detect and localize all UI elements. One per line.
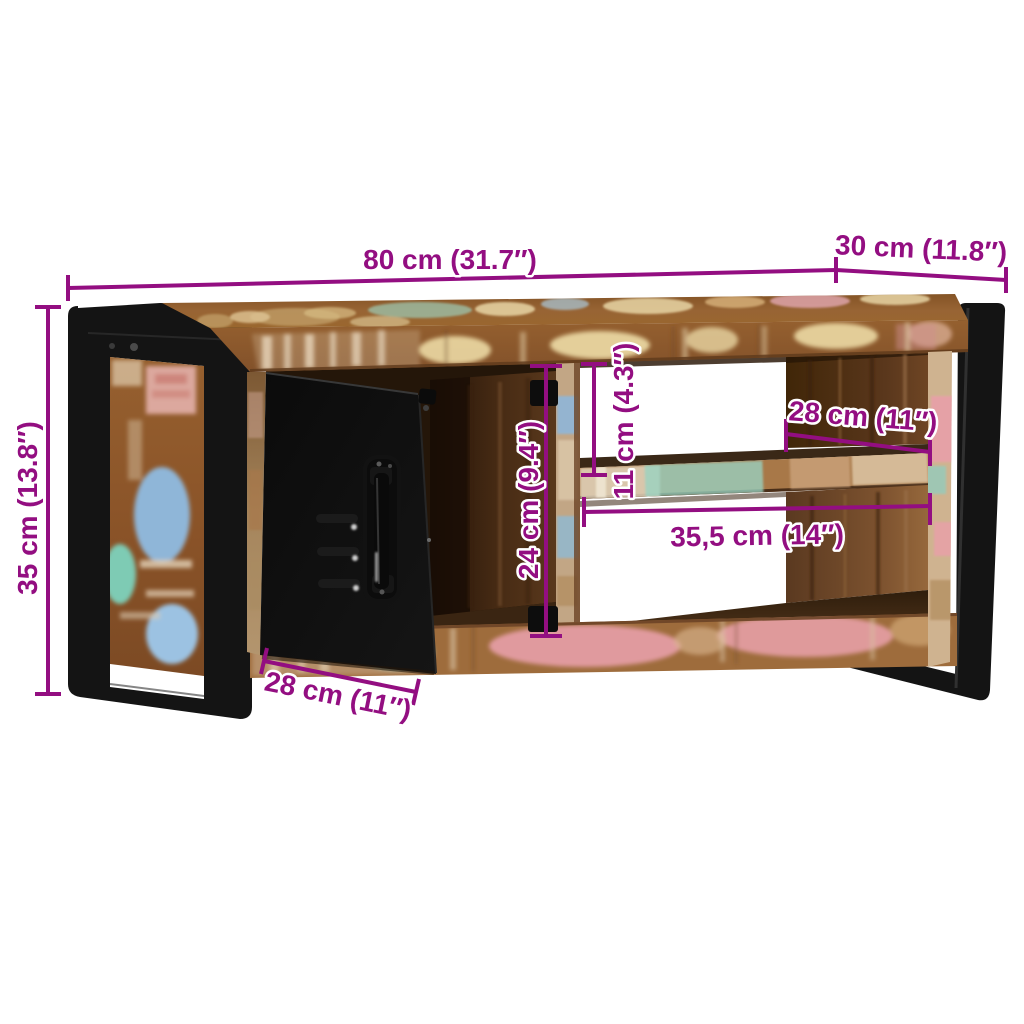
svg-text:24 cm (9.4″): 24 cm (9.4″) bbox=[513, 421, 544, 579]
svg-text:80 cm (31.7″): 80 cm (31.7″) bbox=[363, 244, 537, 275]
svg-text:35,5 cm (14″): 35,5 cm (14″) bbox=[670, 518, 844, 552]
svg-text:35 cm (13.8″): 35 cm (13.8″) bbox=[12, 421, 43, 595]
svg-text:11 cm (4.3″): 11 cm (4.3″) bbox=[608, 343, 639, 500]
